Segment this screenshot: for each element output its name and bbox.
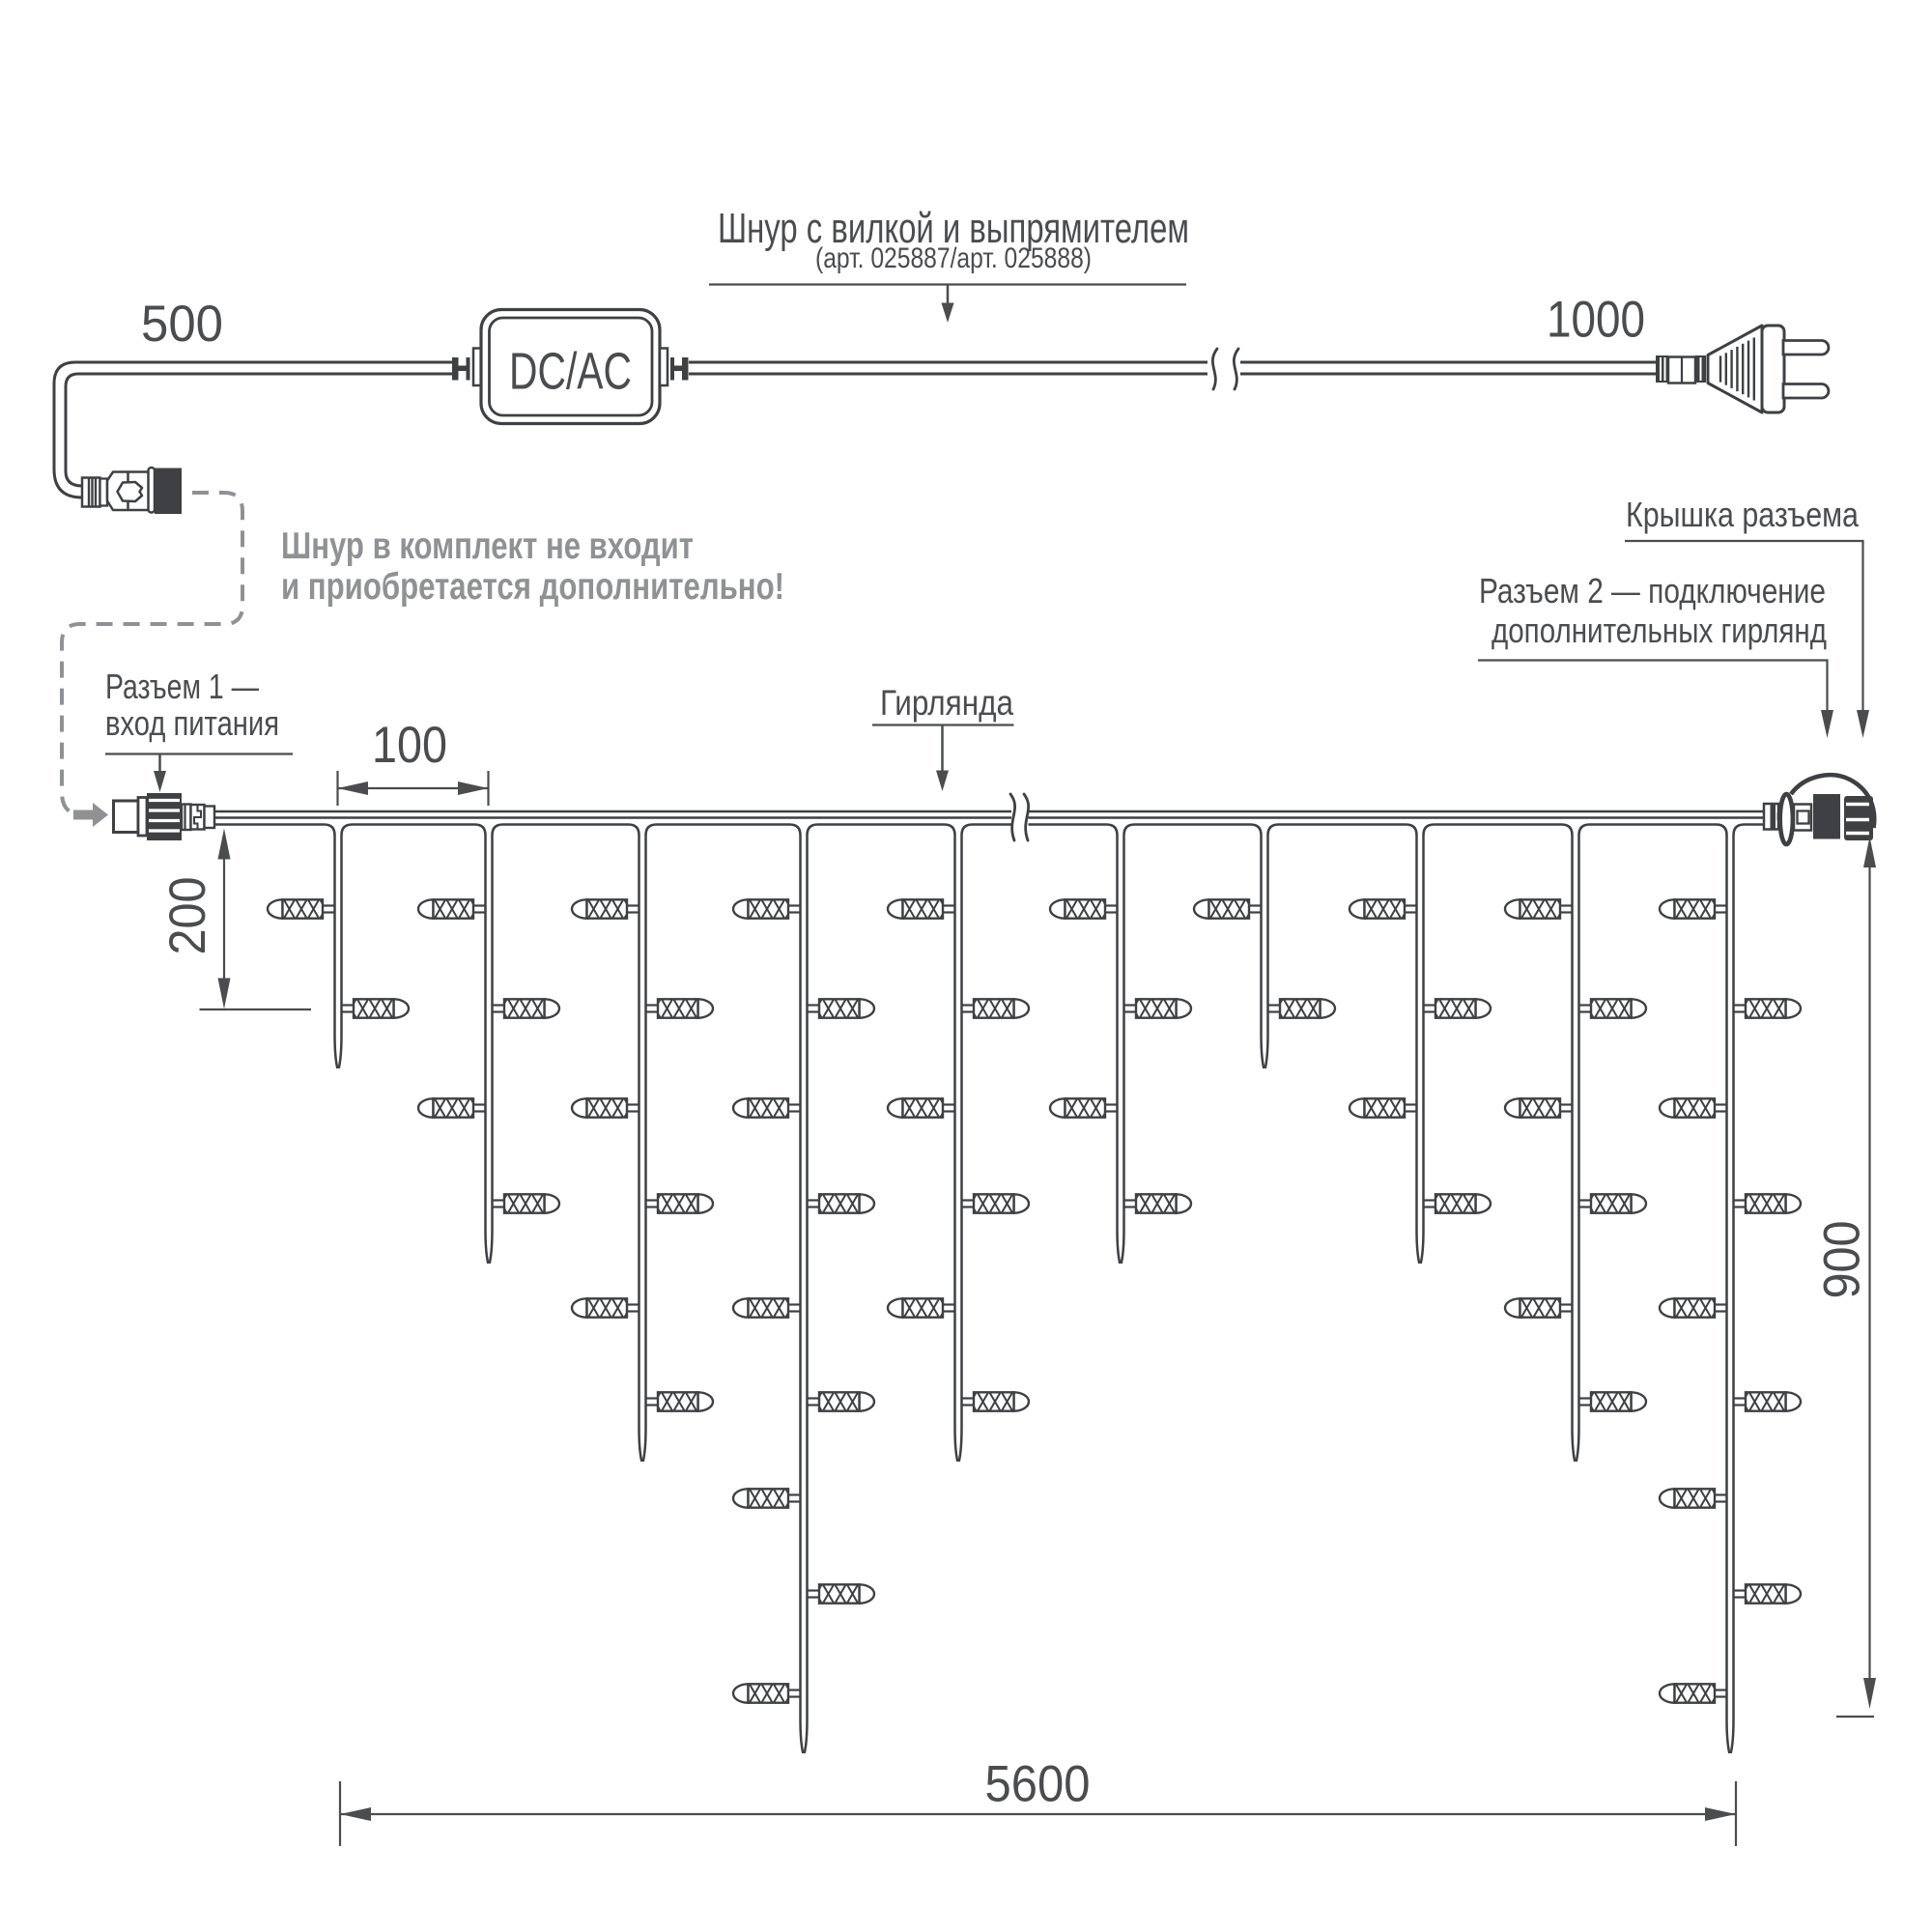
svg-text:вход питания: вход питания	[105, 703, 279, 743]
svg-text:Разъем 2 — подключение: Разъем 2 — подключение	[1479, 571, 1826, 611]
svg-text:(арт. 025887/арт. 025888): (арт. 025887/арт. 025888)	[815, 242, 1092, 274]
svg-text:5600: 5600	[985, 1756, 1091, 1813]
svg-text:1000: 1000	[1547, 292, 1645, 349]
svg-text:100: 100	[372, 717, 447, 774]
svg-text:DC/AC: DC/AC	[509, 343, 632, 401]
svg-text:и приобретается дополнительно!: и приобретается дополнительно!	[281, 566, 784, 608]
svg-text:500: 500	[141, 296, 223, 353]
svg-text:Шнур в комплект не входит: Шнур в комплект не входит	[281, 526, 694, 567]
svg-text:900: 900	[1814, 1221, 1871, 1299]
svg-text:200: 200	[159, 877, 216, 955]
svg-text:Крышка разъема: Крышка разъема	[1626, 495, 1860, 534]
svg-text:дополнительных гирлянд: дополнительных гирлянд	[1492, 611, 1827, 650]
svg-text:Разъем 1 —: Разъем 1 —	[105, 667, 259, 706]
svg-text:Гирлянда: Гирлянда	[880, 683, 1013, 723]
